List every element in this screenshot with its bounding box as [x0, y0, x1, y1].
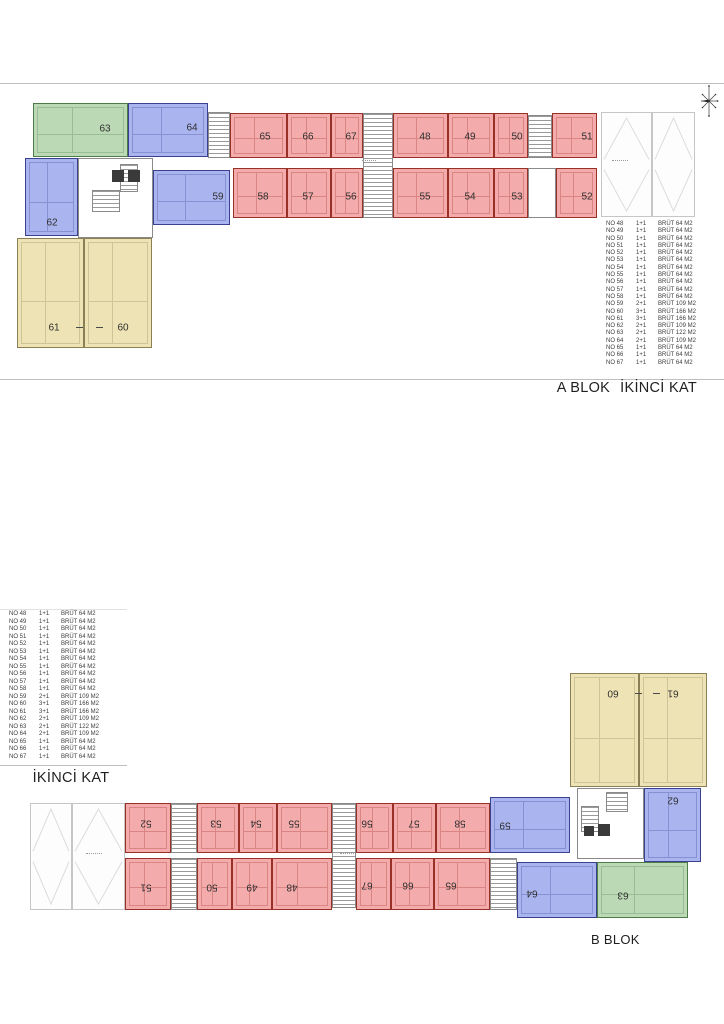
legend-no: NO 64 — [606, 338, 636, 345]
unit-walls — [281, 807, 328, 849]
legend-row: NO 551+1BRÜT 64 M2 — [9, 664, 99, 672]
plan-b-block-label: B BLOK — [591, 932, 640, 947]
legend-no: NO 56 — [606, 279, 636, 286]
legend-type: 2+1 — [636, 338, 658, 345]
unit-53: 53 — [197, 803, 239, 853]
unit-number-label: 54 — [250, 818, 261, 829]
legend-no: NO 53 — [606, 257, 636, 264]
legend-type: 1+1 — [636, 236, 658, 243]
legend-type: 1+1 — [636, 345, 658, 352]
legend-row: NO 531+1BRÜT 64 M2 — [606, 257, 696, 264]
legend-brut: BRÜT 64 M2 — [61, 634, 96, 642]
unit-number-label: 63 — [617, 890, 628, 901]
unit-number-label: 65 — [445, 880, 456, 891]
unit-60: 60 — [570, 673, 639, 787]
legend-brut: BRÜT 109 M2 — [658, 301, 696, 308]
legend-brut: BRÜT 64 M2 — [658, 257, 693, 264]
legend-type: 2+1 — [636, 301, 658, 308]
legend-type: 1+1 — [39, 619, 61, 627]
legend-row: NO 592+1BRÜT 109 M2 — [606, 301, 696, 308]
unit-66: 66 — [391, 858, 434, 910]
legend-type: 2+1 — [636, 330, 658, 337]
legend-type: 3+1 — [39, 701, 61, 709]
legend-brut: BRÜT 109 M2 — [658, 338, 696, 345]
label-dash — [653, 693, 660, 694]
label-dash — [635, 693, 642, 694]
unit-walls — [129, 862, 167, 906]
legend-no: NO 49 — [606, 228, 636, 235]
legend-no: NO 67 — [606, 360, 636, 367]
unit-58: 58 — [436, 803, 490, 853]
unit-56: 56 — [356, 803, 393, 853]
unit-walls — [574, 677, 635, 783]
unit-55: 55 — [277, 803, 332, 853]
legend-row: NO 491+1BRÜT 64 M2 — [606, 228, 696, 235]
parking-chevron-icon — [31, 804, 71, 909]
legend-row: NO 561+1BRÜT 64 M2 — [606, 279, 696, 286]
legend-brut: BRÜT 64 M2 — [61, 626, 96, 634]
unit-number-label: 56 — [361, 818, 372, 829]
legend-brut: BRÜT 64 M2 — [658, 279, 693, 286]
legend-brut: BRÜT 64 M2 — [61, 649, 96, 657]
legend-brut: BRÜT 64 M2 — [61, 656, 96, 664]
unit-number-label: 55 — [288, 818, 299, 829]
legend-brut: BRÜT 64 M2 — [658, 228, 693, 235]
legend-row: NO 632+1BRÜT 122 M2 — [9, 724, 99, 732]
legend-no: NO 49 — [9, 619, 39, 627]
legend-row: NO 521+1BRÜT 64 M2 — [9, 641, 99, 649]
stair-block — [171, 803, 197, 853]
unit-walls — [243, 807, 273, 849]
legend-row: NO 661+1BRÜT 64 M2 — [9, 746, 99, 754]
unit-number-label: 57 — [408, 818, 419, 829]
unit-walls — [601, 866, 684, 914]
legend-type: 1+1 — [39, 634, 61, 642]
legend-type: 1+1 — [636, 228, 658, 235]
legend-brut: BRÜT 64 M2 — [658, 360, 693, 367]
legend-row: NO 491+1BRÜT 64 M2 — [9, 619, 99, 627]
legend-brut: BRÜT 64 M2 — [61, 664, 96, 672]
legend-row: NO 632+1BRÜT 122 M2 — [606, 330, 696, 337]
tiny-annotation — [340, 853, 354, 857]
legend-b-floor-label: İKİNCİ KAT — [16, 770, 126, 786]
unit-walls — [648, 792, 697, 858]
unit-number-label: 67 — [361, 880, 372, 891]
legend-brut: BRÜT 109 M2 — [61, 694, 99, 702]
legend-brut: BRÜT 64 M2 — [61, 686, 96, 694]
legend-brut: BRÜT 64 M2 — [658, 352, 693, 359]
legend-row: NO 622+1BRÜT 109 M2 — [9, 716, 99, 724]
legend-no: NO 57 — [606, 287, 636, 294]
unit-walls — [360, 807, 389, 849]
legend-no: NO 63 — [9, 724, 39, 732]
legend-row: NO 671+1BRÜT 64 M2 — [9, 754, 99, 762]
legend-brut: BRÜT 166 M2 — [61, 701, 99, 709]
legend-no: NO 55 — [606, 272, 636, 279]
unit-walls — [201, 807, 235, 849]
legend-no: NO 60 — [606, 309, 636, 316]
plan-b-drawing: 6061625964635253545556575851504948676665 — [0, 0, 724, 1024]
legend-row: NO 571+1BRÜT 64 M2 — [9, 679, 99, 687]
legend-type: 1+1 — [39, 671, 61, 679]
legend-brut: BRÜT 122 M2 — [658, 330, 696, 337]
legend-type: 1+1 — [39, 754, 61, 762]
unit-49: 49 — [232, 858, 272, 910]
unit-number-label: 48 — [286, 882, 297, 893]
legend-row: NO 501+1BRÜT 64 M2 — [606, 236, 696, 243]
legend-no: NO 63 — [606, 330, 636, 337]
legend-no: NO 57 — [9, 679, 39, 687]
legend-type: 3+1 — [39, 709, 61, 717]
tiny-annotation — [86, 853, 102, 857]
legend-type: 1+1 — [636, 352, 658, 359]
legend-brut: BRÜT 109 M2 — [61, 731, 99, 739]
unit-number-label: 49 — [246, 882, 257, 893]
unit-57: 57 — [393, 803, 436, 853]
legend-row: NO 613+1BRÜT 166 M2 — [9, 709, 99, 717]
unit-number-label: 60 — [607, 688, 618, 699]
legend-no: NO 55 — [9, 664, 39, 672]
legend-brut: BRÜT 64 M2 — [658, 236, 693, 243]
legend-no: NO 64 — [9, 731, 39, 739]
legend-no: NO 56 — [9, 671, 39, 679]
legend-type: 1+1 — [636, 294, 658, 301]
legend-type: 1+1 — [636, 221, 658, 228]
legend-no: NO 59 — [606, 301, 636, 308]
legend-no: NO 54 — [9, 656, 39, 664]
legend-brut: BRÜT 64 M2 — [658, 265, 693, 272]
legend-table-a: NO 481+1BRÜT 64 M2NO 491+1BRÜT 64 M2NO 5… — [606, 221, 696, 367]
unit-walls — [440, 807, 486, 849]
unit-number-label: 64 — [526, 888, 537, 899]
unit-walls — [276, 862, 328, 906]
elevator-block — [598, 824, 610, 836]
plan-a-caption: A BLOKİKİNCİ KAT — [557, 380, 697, 396]
plan-a-block-label: A BLOK — [557, 380, 610, 396]
legend-type: 2+1 — [39, 731, 61, 739]
legend-brut: BRÜT 166 M2 — [61, 709, 99, 717]
legend-type: 1+1 — [636, 272, 658, 279]
legend-row: NO 541+1BRÜT 64 M2 — [606, 265, 696, 272]
legend-type: 2+1 — [39, 724, 61, 732]
legend-brut: BRÜT 64 M2 — [61, 619, 96, 627]
legend-no: NO 50 — [606, 236, 636, 243]
legend-brut: BRÜT 64 M2 — [61, 739, 96, 747]
legend-no: NO 48 — [606, 221, 636, 228]
legend-type: 1+1 — [636, 243, 658, 250]
legend-type: 3+1 — [636, 316, 658, 323]
legend-row: NO 561+1BRÜT 64 M2 — [9, 671, 99, 679]
unit-number-label: 66 — [402, 880, 413, 891]
legend-type: 1+1 — [39, 746, 61, 754]
legend-no: NO 65 — [606, 345, 636, 352]
legend-no: NO 60 — [9, 701, 39, 709]
legend-no: NO 61 — [606, 316, 636, 323]
legend-brut: BRÜT 64 M2 — [61, 754, 96, 762]
unit-51: 51 — [125, 858, 171, 910]
legend-type: 2+1 — [39, 716, 61, 724]
legend-no: NO 61 — [9, 709, 39, 717]
stair-block — [490, 858, 517, 910]
legend-no: NO 52 — [606, 250, 636, 257]
unit-walls — [521, 866, 593, 914]
legend-type: 2+1 — [636, 323, 658, 330]
legend-type: 1+1 — [636, 360, 658, 367]
legend-brut: BRÜT 166 M2 — [658, 309, 696, 316]
legend-no: NO 50 — [9, 626, 39, 634]
unit-walls — [360, 862, 387, 906]
legend-no: NO 54 — [606, 265, 636, 272]
legend-type: 1+1 — [39, 641, 61, 649]
legend-brut: BRÜT 64 M2 — [61, 611, 96, 619]
unit-65: 65 — [434, 858, 490, 910]
legend-row: NO 571+1BRÜT 64 M2 — [606, 287, 696, 294]
unit-number-label: 58 — [454, 818, 465, 829]
unit-number-label: 50 — [206, 882, 217, 893]
legend-no: NO 66 — [606, 352, 636, 359]
legend-type: 1+1 — [636, 265, 658, 272]
legend-type: 1+1 — [39, 649, 61, 657]
legend-no: NO 52 — [9, 641, 39, 649]
unit-walls — [438, 862, 486, 906]
unit-62: 62 — [644, 788, 701, 862]
legend-no: NO 58 — [606, 294, 636, 301]
legend-type: 3+1 — [636, 309, 658, 316]
legend-no: NO 53 — [9, 649, 39, 657]
unit-walls — [201, 862, 228, 906]
legend-row: NO 603+1BRÜT 166 M2 — [9, 701, 99, 709]
legend-no: NO 65 — [9, 739, 39, 747]
legend-brut: BRÜT 109 M2 — [61, 716, 99, 724]
legend-no: NO 67 — [9, 754, 39, 762]
unit-walls — [129, 807, 167, 849]
legend-row: NO 661+1BRÜT 64 M2 — [606, 352, 696, 359]
legend-type: 1+1 — [39, 664, 61, 672]
legend-row: NO 511+1BRÜT 64 M2 — [9, 634, 99, 642]
legend-row: NO 651+1BRÜT 64 M2 — [9, 739, 99, 747]
legend-type: 1+1 — [636, 250, 658, 257]
unit-number-label: 52 — [140, 818, 151, 829]
legend-no: NO 58 — [9, 686, 39, 694]
legend-no: NO 48 — [9, 611, 39, 619]
unit-50: 50 — [197, 858, 232, 910]
unit-64: 64 — [517, 862, 597, 918]
legend-type: 1+1 — [636, 257, 658, 264]
legend-no: NO 66 — [9, 746, 39, 754]
unit-number-label: 51 — [140, 882, 151, 893]
legend-brut: BRÜT 64 M2 — [61, 641, 96, 649]
legend-no: NO 51 — [9, 634, 39, 642]
unit-walls — [494, 801, 566, 849]
legend-row: NO 671+1BRÜT 64 M2 — [606, 360, 696, 367]
unit-61: 61 — [639, 673, 707, 787]
unit-walls — [643, 677, 703, 783]
floor-plan-sheet: 6364625961606566674849505158575655545352… — [0, 0, 724, 1024]
legend-type: 1+1 — [636, 287, 658, 294]
unit-52: 52 — [125, 803, 171, 853]
legend-brut: BRÜT 64 M2 — [658, 287, 693, 294]
unit-63: 63 — [597, 862, 688, 918]
unit-number-label: 61 — [667, 688, 678, 699]
legend-no: NO 51 — [606, 243, 636, 250]
legend-row: NO 581+1BRÜT 64 M2 — [9, 686, 99, 694]
legend-type: 1+1 — [39, 739, 61, 747]
legend-row: NO 603+1BRÜT 166 M2 — [606, 309, 696, 316]
unit-number-label: 59 — [499, 820, 510, 831]
legend-type: 1+1 — [39, 611, 61, 619]
unit-number-label: 53 — [210, 818, 221, 829]
legend-brut: BRÜT 64 M2 — [61, 679, 96, 687]
legend-brut: BRÜT 64 M2 — [61, 671, 96, 679]
legend-row: NO 481+1BRÜT 64 M2 — [9, 611, 99, 619]
stair-block — [171, 858, 197, 910]
unit-48: 48 — [272, 858, 332, 910]
legend-no: NO 59 — [9, 694, 39, 702]
unit-59: 59 — [490, 797, 570, 853]
legend-brut: BRÜT 122 M2 — [61, 724, 99, 732]
legend-row: NO 592+1BRÜT 109 M2 — [9, 694, 99, 702]
legend-no: NO 62 — [9, 716, 39, 724]
legend-row: NO 642+1BRÜT 109 M2 — [9, 731, 99, 739]
garage-bay — [30, 803, 72, 910]
legend-no: NO 62 — [606, 323, 636, 330]
legend-row: NO 642+1BRÜT 109 M2 — [606, 338, 696, 345]
legend-row: NO 541+1BRÜT 64 M2 — [9, 656, 99, 664]
legend-type: 1+1 — [636, 279, 658, 286]
elevator-block — [584, 826, 594, 836]
unit-54: 54 — [239, 803, 277, 853]
stair-block — [606, 792, 628, 812]
legend-type: 1+1 — [39, 686, 61, 694]
unit-walls — [395, 862, 430, 906]
legend-type: 1+1 — [39, 679, 61, 687]
legend-brut: BRÜT 64 M2 — [61, 746, 96, 754]
legend-row: NO 501+1BRÜT 64 M2 — [9, 626, 99, 634]
legend-type: 2+1 — [39, 694, 61, 702]
unit-67: 67 — [356, 858, 391, 910]
legend-type: 1+1 — [39, 626, 61, 634]
unit-walls — [397, 807, 432, 849]
unit-walls — [236, 862, 268, 906]
legend-row: NO 531+1BRÜT 64 M2 — [9, 649, 99, 657]
legend-table-b: NO 481+1BRÜT 64 M2NO 491+1BRÜT 64 M2NO 5… — [9, 611, 99, 761]
plan-a-floor-label: İKİNCİ KAT — [620, 380, 697, 396]
legend-type: 1+1 — [39, 656, 61, 664]
unit-number-label: 62 — [667, 795, 678, 806]
